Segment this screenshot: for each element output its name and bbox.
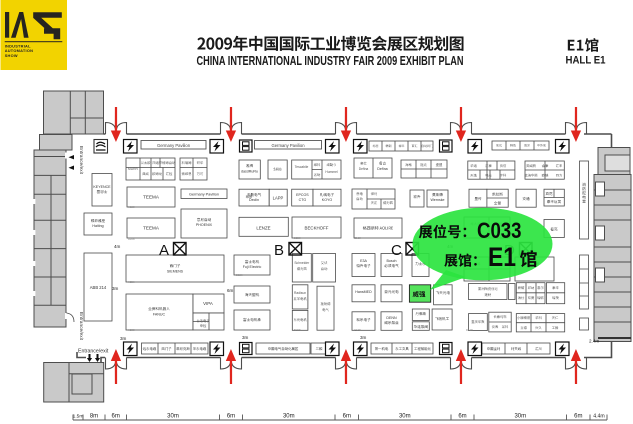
svg-text:Haiting: Haiting	[92, 224, 103, 228]
svg-text:6m: 6m	[227, 414, 235, 420]
svg-text:30m: 30m	[514, 414, 526, 420]
svg-text:1.5m: 1.5m	[73, 414, 84, 420]
svg-text:Wernske: Wernske	[430, 198, 444, 202]
svg-text:MURR: MURR	[128, 167, 139, 171]
svg-text:3m: 3m	[120, 336, 127, 341]
svg-text:A: A	[159, 242, 169, 259]
svg-text:dasdRuRu: dasdRuRu	[241, 170, 258, 174]
svg-text:C: C	[391, 242, 402, 259]
svg-text:ABB 214: ABB 214	[90, 285, 107, 290]
svg-text:Schneider: Schneider	[294, 261, 310, 265]
svg-text:C033: C033	[477, 218, 522, 243]
svg-text:6m: 6m	[574, 414, 582, 420]
svg-text:E1: E1	[488, 242, 516, 272]
svg-text:4m: 4m	[114, 244, 121, 249]
svg-text:30m: 30m	[399, 414, 411, 420]
svg-text:A158: A158	[128, 205, 135, 209]
svg-text:Germany Pavilion: Germany Pavilion	[271, 143, 305, 148]
svg-text:4.4m: 4.4m	[593, 414, 605, 420]
svg-text:Declin: Declin	[249, 198, 259, 202]
svg-text:Fuji Electric: Fuji Electric	[243, 265, 262, 269]
svg-text:Entrance/exit: Entrance/exit	[78, 349, 109, 355]
svg-text:SHOW: SHOW	[5, 53, 18, 58]
svg-text:B: B	[274, 242, 284, 259]
svg-text:30m: 30m	[167, 414, 179, 420]
svg-text:C108: C108	[354, 328, 361, 332]
svg-text:Hummel: Hummel	[325, 170, 338, 174]
svg-text:2.4m: 2.4m	[589, 339, 599, 344]
svg-text:6m: 6m	[458, 414, 466, 420]
svg-text:A168: A168	[128, 237, 135, 241]
svg-text:VIPA: VIPA	[203, 301, 213, 306]
svg-text:3m: 3m	[360, 335, 367, 340]
svg-text:B208: B208	[294, 328, 301, 332]
svg-text:C168: C168	[354, 236, 361, 240]
svg-text:30m: 30m	[283, 414, 295, 420]
svg-text:D108: D108	[466, 328, 473, 332]
svg-text:LENZE: LENZE	[256, 226, 270, 231]
svg-text:FANUC: FANUC	[153, 313, 166, 317]
svg-text:8m: 8m	[90, 414, 98, 420]
svg-text:Radisun: Radisun	[294, 291, 306, 295]
svg-text:6m: 6m	[112, 414, 120, 420]
svg-text:6m: 6m	[227, 288, 234, 293]
svg-text:B258: B258	[294, 236, 301, 240]
svg-text:3m: 3m	[112, 286, 119, 291]
svg-text:B156: B156	[236, 273, 243, 277]
svg-text:Entrance/exit: Entrance/exit	[78, 312, 84, 341]
svg-text:HansMED: HansMED	[355, 290, 372, 294]
svg-text:KEYENCE: KEYENCE	[93, 185, 111, 189]
svg-text:CHINA INTERNATIONAL INDUSTRY: CHINA INTERNATIONAL INDUSTRY FAIR 2009 E…	[197, 53, 464, 68]
svg-text:A256: A256	[128, 280, 135, 284]
svg-text:TEEMA: TEEMA	[143, 195, 160, 200]
svg-text:KOYO: KOYO	[322, 198, 333, 202]
svg-text:SIEMENS: SIEMENS	[167, 270, 184, 274]
svg-text:PHOENIX: PHOENIX	[196, 223, 213, 227]
svg-text:Germany Pavilion: Germany Pavilion	[157, 143, 191, 148]
svg-text:Entrance/exit: Entrance/exit	[78, 146, 84, 175]
svg-text:HALL E1: HALL E1	[566, 55, 606, 67]
svg-text:A208: A208	[128, 328, 135, 332]
svg-text:CTG: CTG	[299, 198, 307, 202]
svg-text:BECKHOFF: BECKHOFF	[305, 226, 329, 231]
svg-text:Defina: Defina	[377, 167, 387, 171]
svg-text:3m: 3m	[242, 335, 249, 340]
svg-text:Tescabile: Tescabile	[295, 165, 309, 169]
svg-text:Defina: Defina	[359, 167, 369, 171]
svg-text:Germany Pavilion: Germany Pavilion	[189, 193, 219, 197]
svg-text:Bosch: Bosch	[387, 259, 397, 263]
svg-text:6m: 6m	[343, 414, 351, 420]
svg-text:DENN: DENN	[386, 316, 397, 320]
svg-text:TEEMA: TEEMA	[143, 226, 160, 231]
svg-text:LAPP: LAPP	[273, 196, 284, 201]
svg-text:EPCOS: EPCOS	[296, 193, 309, 197]
svg-text:E3A: E3A	[360, 259, 367, 263]
